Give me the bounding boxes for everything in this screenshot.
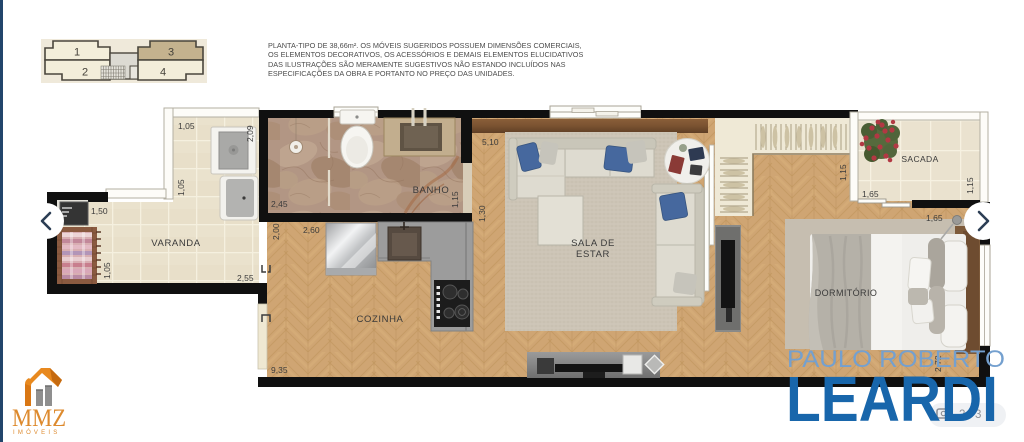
svg-text:1,65: 1,65 <box>862 189 879 199</box>
svg-text:SACADA: SACADA <box>901 154 938 164</box>
svg-text:LEARDI: LEARDI <box>786 363 998 435</box>
svg-text:DORMITÓRIO: DORMITÓRIO <box>815 288 878 298</box>
svg-text:5,10: 5,10 <box>482 137 499 147</box>
svg-text:2,00: 2,00 <box>271 223 281 240</box>
svg-text:2,55: 2,55 <box>237 273 254 283</box>
svg-text:1,05: 1,05 <box>176 179 186 196</box>
svg-text:9,35: 9,35 <box>271 365 288 375</box>
svg-text:1,30: 1,30 <box>477 205 487 222</box>
svg-text:4: 4 <box>160 67 166 79</box>
svg-text:ESTAR: ESTAR <box>576 249 610 260</box>
svg-text:1,65: 1,65 <box>926 213 943 223</box>
svg-text:IMÓVEIS: IMÓVEIS <box>13 429 60 436</box>
svg-text:1,50: 1,50 <box>91 206 108 216</box>
svg-text:2,09: 2,09 <box>245 125 255 142</box>
svg-text:1: 1 <box>74 47 80 59</box>
svg-text:1,05: 1,05 <box>102 262 112 279</box>
svg-text:BANHO: BANHO <box>413 185 450 196</box>
svg-text:1,05: 1,05 <box>178 121 195 131</box>
svg-text:2,60: 2,60 <box>303 225 320 235</box>
svg-text:1,15: 1,15 <box>838 164 848 181</box>
svg-text:1,15: 1,15 <box>450 191 460 208</box>
svg-text:3: 3 <box>168 47 174 59</box>
svg-text:SALA DE: SALA DE <box>571 238 615 249</box>
svg-text:1,15: 1,15 <box>965 177 975 194</box>
svg-text:2,45: 2,45 <box>271 199 288 209</box>
svg-text:MMZ: MMZ <box>12 405 66 432</box>
svg-text:COZINHA: COZINHA <box>357 314 404 325</box>
svg-text:VARANDA: VARANDA <box>151 238 200 249</box>
svg-text:2: 2 <box>82 67 88 79</box>
